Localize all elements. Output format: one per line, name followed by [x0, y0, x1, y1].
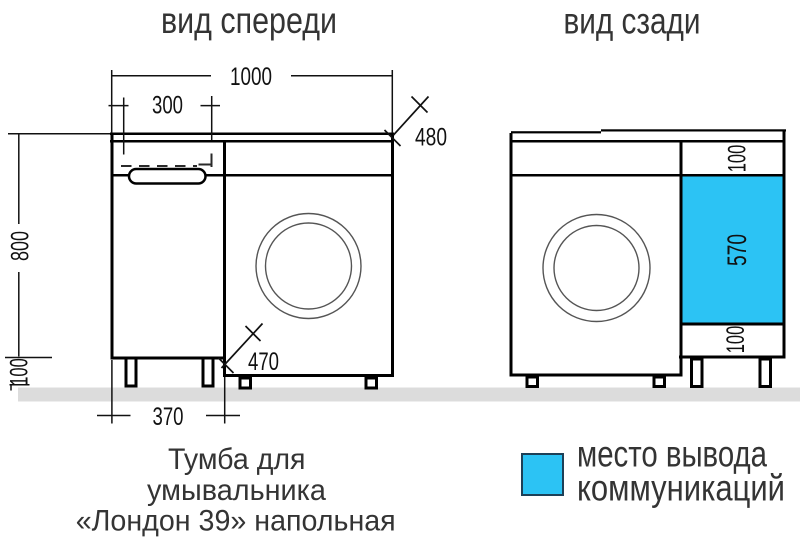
svg-text:1000: 1000 — [230, 63, 272, 91]
svg-text:100: 100 — [724, 145, 752, 173]
svg-text:Тумба для: Тумба для — [168, 443, 306, 476]
svg-text:370: 370 — [153, 403, 184, 431]
svg-text:умывальника: умывальника — [147, 474, 326, 507]
svg-text:470: 470 — [248, 348, 279, 376]
svg-text:800: 800 — [7, 231, 35, 261]
svg-text:570: 570 — [722, 234, 752, 266]
svg-text:вид спереди: вид спереди — [161, 0, 337, 41]
svg-text:300: 300 — [152, 92, 183, 120]
svg-text:100: 100 — [6, 358, 34, 386]
svg-text:«Лондон 39» напольная: «Лондон 39» напольная — [76, 505, 396, 538]
svg-text:вид сзади: вид сзади — [564, 0, 701, 41]
svg-text:100: 100 — [722, 326, 750, 354]
svg-text:480: 480 — [415, 124, 447, 152]
svg-text:коммуникаций: коммуникаций — [577, 467, 785, 508]
